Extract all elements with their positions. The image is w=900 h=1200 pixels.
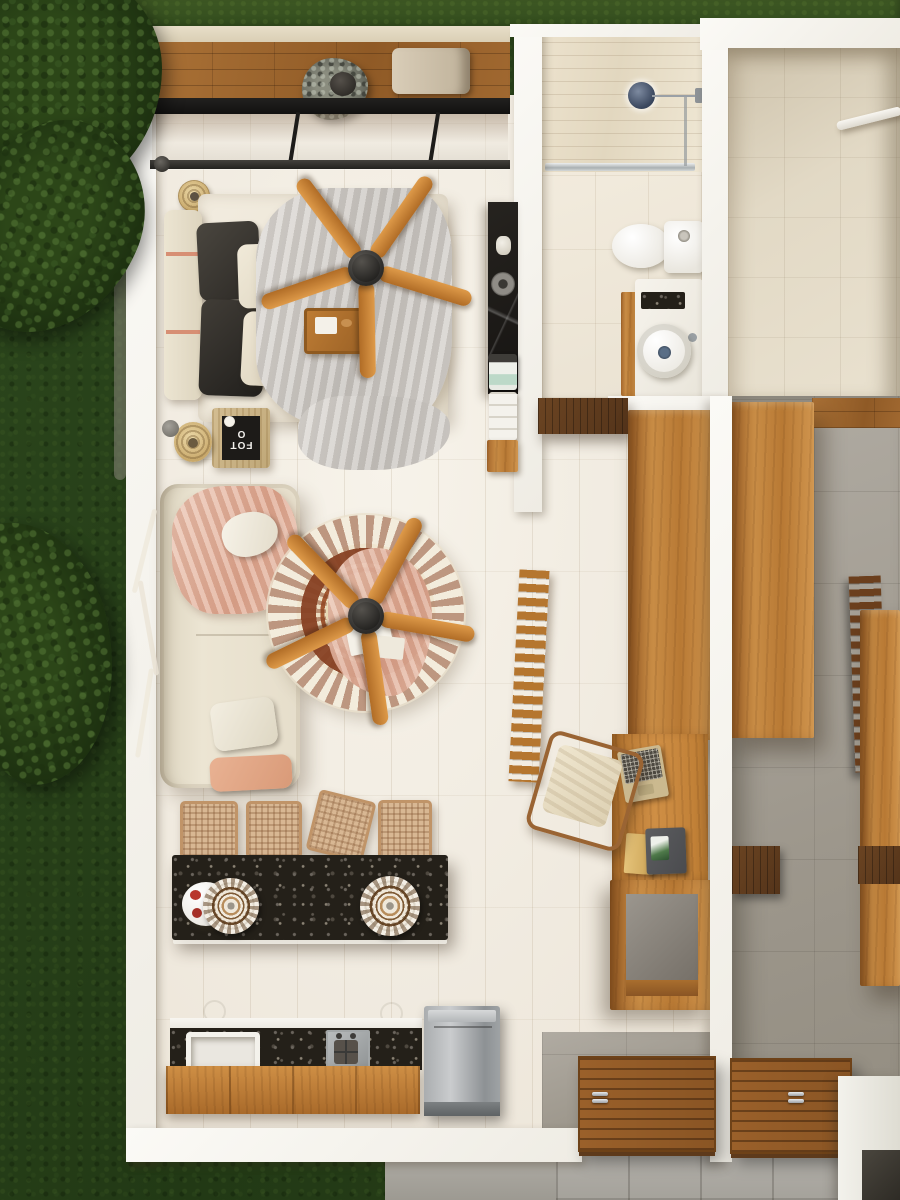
- breakfast-tray: [304, 308, 366, 354]
- dining-chair: [180, 801, 238, 859]
- fruit-strawberry: [192, 908, 202, 918]
- headboard-strap: [166, 252, 200, 256]
- neighbor-wardrobe: [860, 610, 900, 986]
- sliding-door-rail: [150, 160, 510, 169]
- tray-pastry: [341, 319, 352, 327]
- shower-glass-screen: [545, 163, 695, 171]
- cube-shelf-inner-sill: [626, 980, 698, 996]
- cooktop-grate: [334, 1040, 358, 1064]
- tablet-cover-photo: [650, 836, 669, 861]
- coffee-cup: [224, 416, 235, 427]
- wall-cabinet-east: [858, 846, 900, 884]
- fan-blade: [358, 282, 376, 378]
- shower-head: [628, 82, 655, 109]
- kitchen-cabinets: [166, 1066, 420, 1114]
- kitchenette-dispenser: [489, 354, 517, 390]
- planter-niche: [862, 1150, 900, 1200]
- bathroom-west-wall: [514, 24, 542, 512]
- laptop-trackpad: [637, 783, 654, 796]
- kitchenette-dish: [496, 236, 511, 255]
- wardrobe-west: [628, 410, 712, 740]
- entry-door-east: [730, 1058, 852, 1154]
- outdoor-lounge-chair: [392, 48, 470, 94]
- vanity-faucet: [688, 333, 697, 342]
- door-handle: [592, 1092, 608, 1096]
- cooktop-knob: [350, 1033, 356, 1039]
- desk-chair-cushion: [541, 743, 624, 828]
- cube-shelf: [610, 880, 712, 1010]
- basket-shade-center: [188, 438, 198, 448]
- fan-hub: [348, 250, 384, 286]
- fan-hub: [348, 598, 384, 634]
- shower-glass-return: [684, 96, 687, 166]
- entry-north-wall: [700, 18, 900, 50]
- floor-plan-render: FOTO: [0, 0, 900, 1200]
- sliding-door-glass: [152, 114, 508, 162]
- toilet-flush-button: [678, 230, 690, 242]
- door-handle: [788, 1092, 804, 1096]
- photo-book-title: FOTO: [229, 428, 253, 449]
- refrigerator-base: [424, 1102, 500, 1116]
- place-setting: [203, 878, 259, 934]
- place-setting: [360, 876, 420, 936]
- kitchenette-base: [487, 440, 518, 472]
- entry-hall: [728, 48, 900, 398]
- toilet-cistern: [664, 221, 704, 273]
- refrigerator: [424, 1006, 500, 1116]
- bottom-outer-wall: [126, 1128, 582, 1162]
- towel-stack: [489, 392, 517, 440]
- door-handle: [592, 1099, 608, 1103]
- entry-door-west: [578, 1056, 716, 1152]
- tray-card: [315, 317, 337, 334]
- refrigerator-top-vent: [428, 1010, 496, 1022]
- bathroom-east-wall: [702, 22, 728, 415]
- vanity-tray: [641, 292, 685, 309]
- bathroom-north-wall: [510, 24, 728, 37]
- headboard-strap: [166, 330, 200, 334]
- cooktop-knob: [336, 1033, 342, 1039]
- dining-chair: [246, 801, 302, 859]
- door-handle: [788, 1099, 804, 1103]
- sliding-door-header: [150, 98, 510, 114]
- kitchenette-sink: [491, 272, 515, 296]
- toilet-bowl: [612, 224, 670, 268]
- fruit-strawberry: [190, 890, 201, 900]
- sink-drain: [658, 346, 671, 359]
- desk-tablet: [645, 827, 687, 874]
- sofa-pillow-pink: [209, 754, 293, 792]
- wardrobe-east: [730, 402, 814, 738]
- refrigerator-seam: [434, 1026, 492, 1028]
- dining-chair: [378, 800, 432, 860]
- sofa-pillow-white: [209, 696, 279, 752]
- threshold-deck: [812, 398, 900, 428]
- decor-orb: [162, 420, 179, 437]
- shower-arm: [652, 95, 698, 97]
- wall-cabinet-west: [732, 846, 780, 894]
- plant-pot: [330, 72, 356, 96]
- doorway-bench: [538, 398, 628, 434]
- door-roller-hinge: [154, 156, 170, 172]
- cube-shelf-opening: [626, 894, 698, 980]
- shower-floor: [542, 33, 702, 173]
- divider-wall: [710, 396, 732, 1162]
